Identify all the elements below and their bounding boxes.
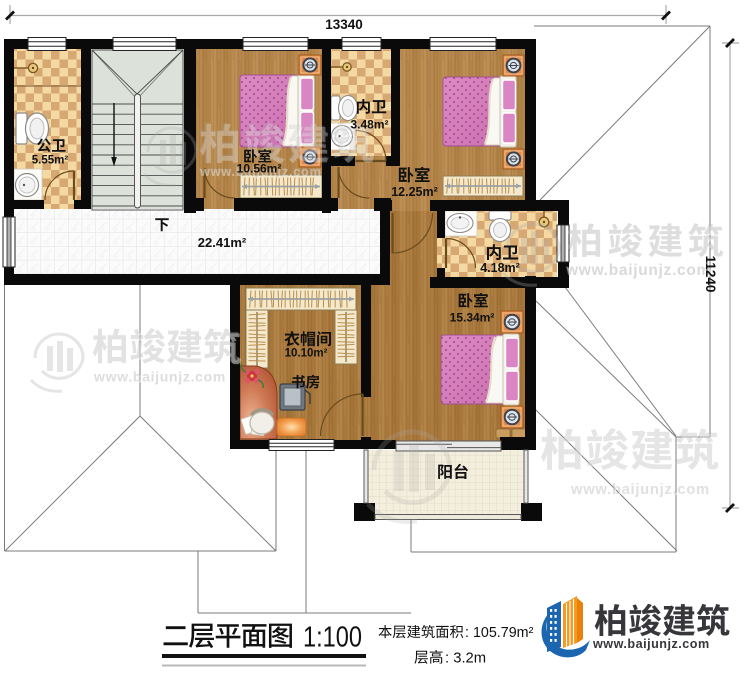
svg-text:5.55m²: 5.55m² xyxy=(32,155,69,167)
svg-text:www.baijunjz.com: www.baijunjz.com xyxy=(592,637,710,651)
svg-text:12.25m²: 12.25m² xyxy=(391,185,438,199)
svg-text:www.baijunjz.com: www.baijunjz.com xyxy=(93,369,226,385)
svg-text:22.41m²: 22.41m² xyxy=(198,235,247,250)
svg-text:4.18m²: 4.18m² xyxy=(480,261,520,275)
svg-text:www.baijunjz.com: www.baijunjz.com xyxy=(570,482,710,498)
svg-text:11240: 11240 xyxy=(703,256,718,293)
svg-text:15.34m²: 15.34m² xyxy=(450,310,495,324)
svg-text:: 105.79m²: : 105.79m² xyxy=(465,625,534,641)
svg-text:1:100: 1:100 xyxy=(303,622,362,654)
svg-text:13340: 13340 xyxy=(325,17,363,32)
svg-text:www.baijunjz.com: www.baijunjz.com xyxy=(565,262,711,279)
svg-text:3.48m²: 3.48m² xyxy=(350,118,388,132)
svg-text:10.10m²: 10.10m² xyxy=(285,348,328,360)
svg-text:10.56m²: 10.56m² xyxy=(237,162,282,176)
svg-text:: 3.2m: : 3.2m xyxy=(445,651,486,667)
